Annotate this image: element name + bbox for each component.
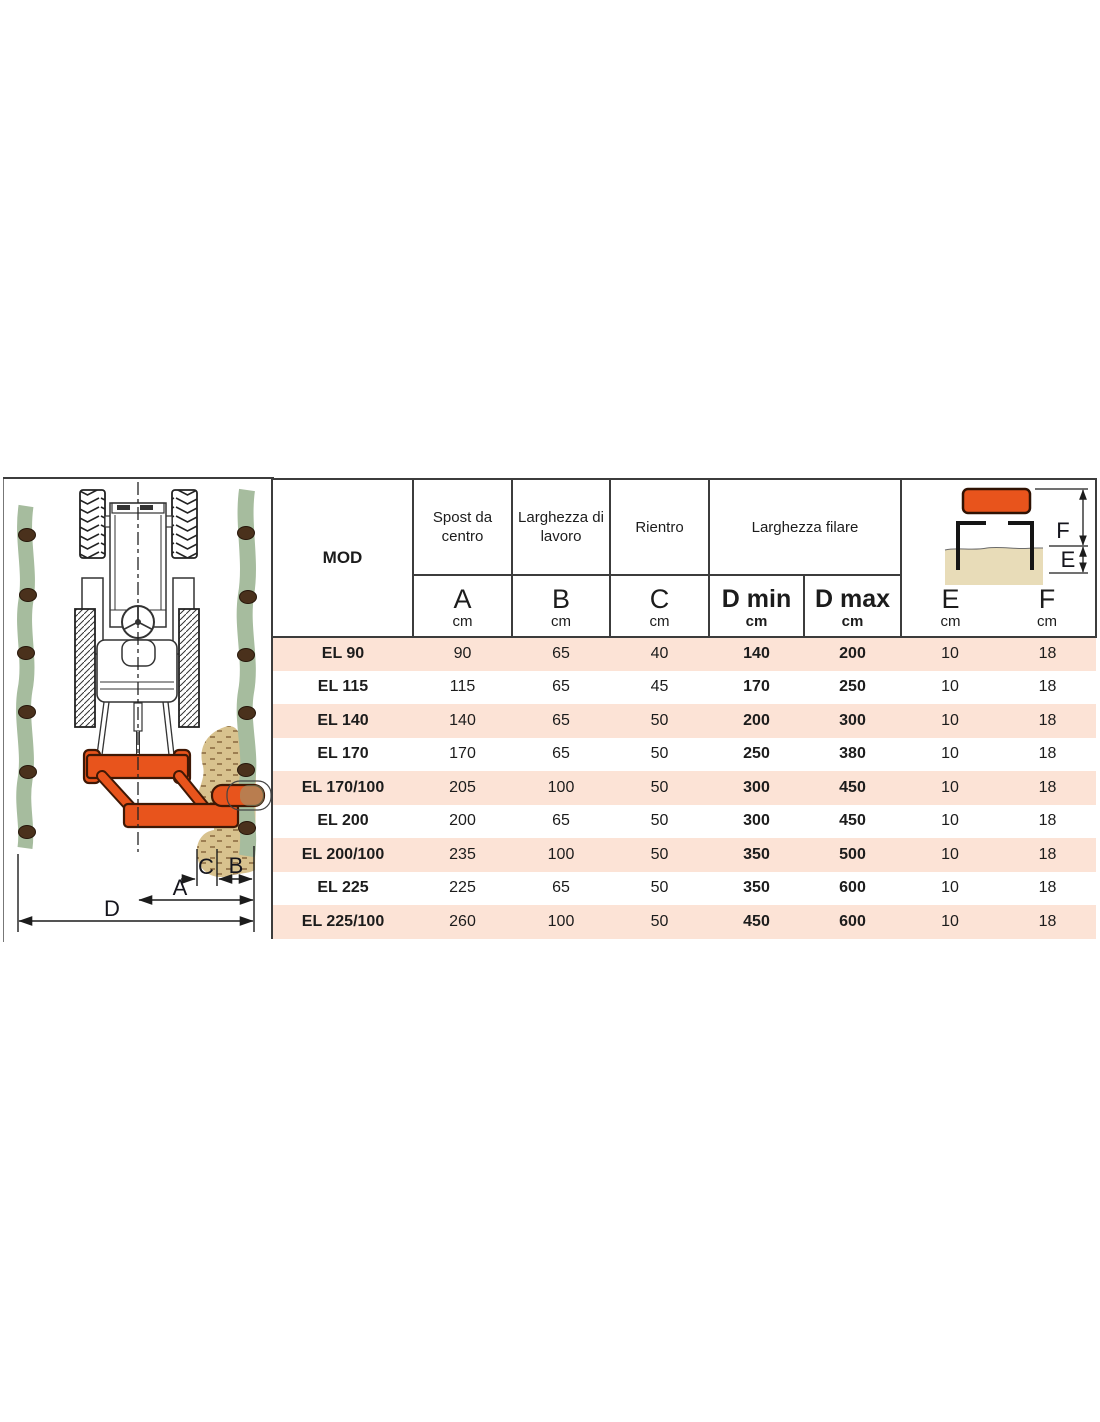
table-row: EL 200/100 235 100 50 350 500 10 18	[272, 838, 1096, 872]
cell-a: 170	[413, 738, 512, 772]
col-unit-a: cm	[414, 614, 511, 630]
header-col-dmin: D min cm	[709, 575, 804, 637]
spec-table: MOD Spost da centro Larghezza di lavoro …	[271, 478, 1097, 939]
col-letter-e: E	[902, 582, 999, 614]
col-unit-f: cm	[999, 614, 1095, 630]
table-row: EL 90 90 65 40 140 200 10 18	[272, 637, 1096, 671]
cell-c: 50	[610, 838, 709, 872]
cell-dmin: 350	[709, 872, 804, 906]
cell-e: 10	[901, 872, 999, 906]
cell-b: 100	[512, 838, 610, 872]
cell-dmin: 300	[709, 771, 804, 805]
cell-dmin: 450	[709, 905, 804, 939]
cell-f: 18	[999, 738, 1096, 772]
cell-a: 225	[413, 872, 512, 906]
tractor-top-view-diagram: C B A D	[0, 470, 274, 950]
cell-c: 50	[610, 905, 709, 939]
cell-dmin: 170	[709, 671, 804, 705]
cell-dmax: 200	[804, 637, 901, 671]
cell-e: 10	[901, 838, 999, 872]
cell-e: 10	[901, 805, 999, 839]
cell-dmax: 600	[804, 905, 901, 939]
cell-c: 50	[610, 872, 709, 906]
header-col-f: F cm	[999, 575, 1096, 637]
col-unit-c: cm	[611, 614, 708, 630]
col-unit-dmax: cm	[805, 614, 900, 630]
cell-dmax: 250	[804, 671, 901, 705]
header-ef-diagram-cell	[901, 479, 1096, 575]
cell-c: 40	[610, 637, 709, 671]
dim-label-c: C	[198, 854, 214, 879]
cell-dmax: 380	[804, 738, 901, 772]
header-rientro: Rientro	[610, 479, 709, 575]
cell-c: 50	[610, 771, 709, 805]
header-col-c: C cm	[610, 575, 709, 637]
cell-c: 50	[610, 704, 709, 738]
cell-dmin: 300	[709, 805, 804, 839]
cell-model: EL 170/100	[272, 771, 413, 805]
cell-b: 65	[512, 805, 610, 839]
col-letter-c: C	[611, 582, 708, 614]
cell-a: 200	[413, 805, 512, 839]
col-unit-dmin: cm	[710, 614, 803, 630]
cell-f: 18	[999, 838, 1096, 872]
tractor-outline	[75, 490, 199, 767]
cell-model: EL 200	[272, 805, 413, 839]
cell-b: 65	[512, 671, 610, 705]
cell-dmax: 450	[804, 771, 901, 805]
cell-f: 18	[999, 671, 1096, 705]
cell-dmax: 300	[804, 704, 901, 738]
header-mod: MOD	[272, 479, 413, 637]
cell-dmin: 350	[709, 838, 804, 872]
cell-model: EL 115	[272, 671, 413, 705]
header-larghezza-di-lavoro: Larghezza di lavoro	[512, 479, 610, 575]
cell-dmin: 140	[709, 637, 804, 671]
cell-c: 50	[610, 738, 709, 772]
header-spost-da-centro: Spost da centro	[413, 479, 512, 575]
header-col-e: E cm	[901, 575, 999, 637]
table-row: EL 140 140 65 50 200 300 10 18	[272, 704, 1096, 738]
table-row: EL 170/100 205 100 50 300 450 10 18	[272, 771, 1096, 805]
col-unit-b: cm	[513, 614, 609, 630]
header-larghezza-filare: Larghezza filare	[709, 479, 901, 575]
spec-sheet-page: C B A D MOD Spost da centro Larghezza di…	[0, 0, 1100, 1422]
cell-model: EL 140	[272, 704, 413, 738]
dim-label-b: B	[229, 853, 244, 878]
dim-label-a: A	[173, 875, 188, 900]
col-letter-b: B	[513, 582, 609, 614]
cell-a: 140	[413, 704, 512, 738]
cell-model: EL 170	[272, 738, 413, 772]
cell-c: 50	[610, 805, 709, 839]
table-row: EL 200 200 65 50 300 450 10 18	[272, 805, 1096, 839]
cell-b: 65	[512, 872, 610, 906]
cell-b: 100	[512, 905, 610, 939]
vine-row-left	[24, 506, 28, 848]
table-row: EL 115 115 65 45 170 250 10 18	[272, 671, 1096, 705]
header-col-b: B cm	[512, 575, 610, 637]
col-unit-e: cm	[902, 614, 999, 630]
col-letter-dmax: D max	[805, 582, 900, 614]
cell-e: 10	[901, 738, 999, 772]
table-row: EL 225 225 65 50 350 600 10 18	[272, 872, 1096, 906]
cell-c: 45	[610, 671, 709, 705]
cell-a: 115	[413, 671, 512, 705]
col-letter-a: A	[414, 582, 511, 614]
cell-b: 65	[512, 738, 610, 772]
header-col-dmax: D max cm	[804, 575, 901, 637]
cell-a: 260	[413, 905, 512, 939]
cell-f: 18	[999, 872, 1096, 906]
cell-e: 10	[901, 671, 999, 705]
cell-e: 10	[901, 704, 999, 738]
table-row: EL 170 170 65 50 250 380 10 18	[272, 738, 1096, 772]
cell-f: 18	[999, 805, 1096, 839]
cell-e: 10	[901, 771, 999, 805]
cell-model: EL 90	[272, 637, 413, 671]
cell-model: EL 225	[272, 872, 413, 906]
cell-f: 18	[999, 637, 1096, 671]
cell-dmax: 450	[804, 805, 901, 839]
cell-e: 10	[901, 637, 999, 671]
cell-a: 205	[413, 771, 512, 805]
col-letter-f: F	[999, 582, 1095, 614]
cell-dmax: 600	[804, 872, 901, 906]
cell-a: 90	[413, 637, 512, 671]
cell-model: EL 225/100	[272, 905, 413, 939]
cell-model: EL 200/100	[272, 838, 413, 872]
cell-b: 65	[512, 637, 610, 671]
cell-dmin: 250	[709, 738, 804, 772]
cell-f: 18	[999, 905, 1096, 939]
cell-f: 18	[999, 771, 1096, 805]
cell-dmin: 200	[709, 704, 804, 738]
cell-f: 18	[999, 704, 1096, 738]
cell-b: 100	[512, 771, 610, 805]
table-row: EL 225/100 260 100 50 450 600 10 18	[272, 905, 1096, 939]
cell-e: 10	[901, 905, 999, 939]
cell-dmax: 500	[804, 838, 901, 872]
col-letter-dmin: D min	[710, 582, 803, 614]
cell-a: 235	[413, 838, 512, 872]
cell-b: 65	[512, 704, 610, 738]
header-col-a: A cm	[413, 575, 512, 637]
dim-label-d: D	[104, 896, 120, 921]
